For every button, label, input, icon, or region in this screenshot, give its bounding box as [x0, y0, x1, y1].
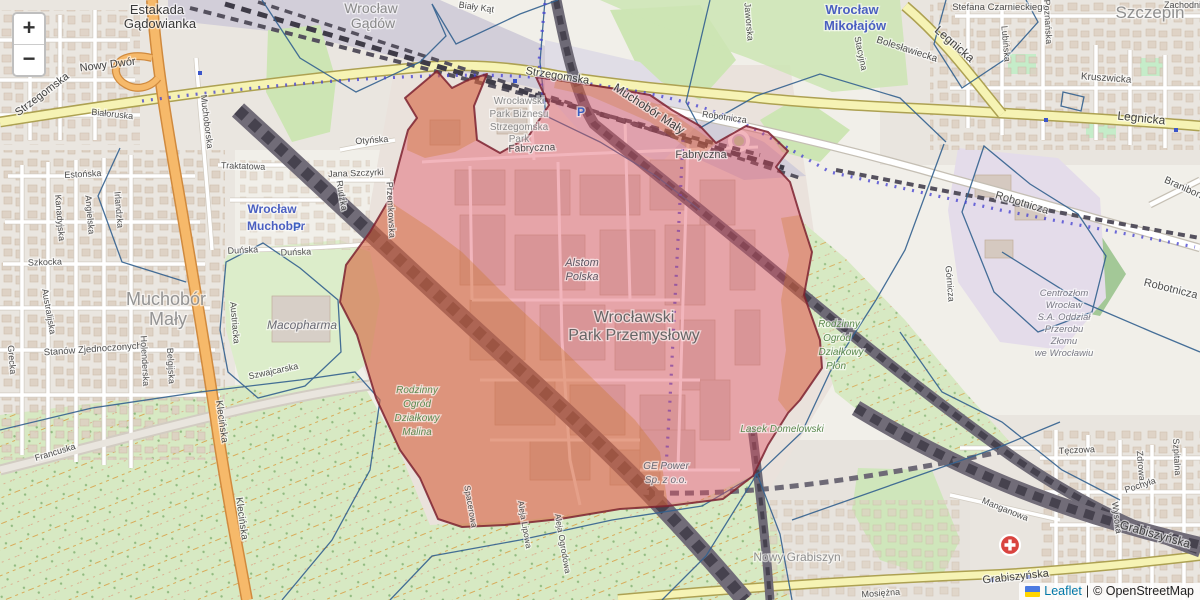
map-label: Park Biznesu	[490, 109, 549, 120]
map-label: Ogród	[823, 333, 851, 344]
map-label: GE Power	[643, 461, 689, 472]
map-label: Polska	[565, 271, 598, 283]
map-label: Fabryczna	[675, 149, 727, 161]
attribution-separator: |	[1086, 584, 1089, 598]
highlight-region-overlay	[340, 71, 822, 527]
map-label: Gądów	[351, 15, 396, 31]
map-label: Przerobu	[1045, 324, 1084, 335]
map-label: Rodzinny	[396, 385, 439, 396]
attribution-bar: Leaflet | © OpenStreetMap	[1019, 583, 1200, 600]
map-label: Wrocław	[825, 2, 879, 17]
zoom-in-button[interactable]: +	[14, 14, 44, 45]
leaflet-link[interactable]: Leaflet	[1044, 584, 1082, 598]
map-label: Alstom	[564, 257, 599, 269]
zoom-out-button[interactable]: −	[14, 45, 44, 75]
map-label: Wrocław	[344, 0, 398, 16]
map-canvas[interactable]: EstakadaGądowiankaWrocławGądówBiały KątS…	[0, 0, 1200, 600]
hospital-icon	[1000, 535, 1020, 555]
map-label: Wrocławski	[594, 309, 675, 326]
openstreetmap-link[interactable]: © OpenStreetMap	[1093, 584, 1194, 598]
map-label: Estońska	[64, 168, 102, 180]
map-label: Szkocka	[28, 256, 62, 267]
map-label: Gądowianka	[124, 16, 197, 31]
map-label: Park Przemysłowy	[568, 327, 700, 344]
map-label: Działkowy	[818, 347, 864, 358]
map-viewport[interactable]: EstakadaGądowiankaWrocławGądówBiały KątS…	[0, 0, 1200, 600]
map-label: Nowy Grabiszyn	[753, 550, 840, 564]
map-label: Wrocław	[247, 202, 297, 216]
map-label: Centrozłom	[1040, 288, 1089, 299]
map-label: Lasek Domelowski	[740, 424, 824, 435]
map-label: P	[293, 220, 301, 234]
ukraine-flag-icon	[1025, 586, 1040, 597]
map-label: Wrocławski	[494, 96, 544, 107]
map-label: Mikołajów	[824, 18, 887, 33]
map-label: Zachodnia	[1164, 0, 1200, 10]
map-label: Malina	[402, 427, 432, 438]
map-label: Strzegomska	[490, 122, 549, 133]
map-label: Wrocław	[1046, 300, 1084, 311]
map-label: Belgijska	[165, 348, 177, 385]
map-label: Muchobór	[126, 289, 206, 309]
map-label: Ogród	[403, 399, 431, 410]
map-label: Działkowy	[394, 413, 440, 424]
zoom-control: + −	[12, 12, 46, 77]
map-label: Duńska	[227, 244, 258, 256]
map-label: P	[577, 105, 585, 119]
map-label: we Wrocławiu	[1035, 348, 1094, 359]
map-label: Sp. z o.o.	[645, 475, 687, 486]
map-label: Duńska	[280, 246, 311, 257]
map-label: Estakada	[130, 2, 185, 17]
map-label: Złomu	[1050, 336, 1078, 347]
map-label: S.A. Oddział	[1038, 312, 1092, 323]
map-label: Park	[509, 134, 531, 145]
map-label: Rodzinny	[818, 319, 861, 330]
map-label: Macopharma	[267, 318, 337, 332]
map-label: Jana Szczyrki	[328, 167, 384, 179]
map-label: Płon	[826, 361, 846, 372]
map-label: Szpitalna	[1171, 438, 1183, 476]
map-label: Traktatowa	[221, 160, 266, 172]
map-label: Tęczowa	[1059, 444, 1095, 456]
map-label: Stefana Czarnieckiego	[952, 2, 1048, 13]
map-label: Mały	[149, 309, 187, 329]
